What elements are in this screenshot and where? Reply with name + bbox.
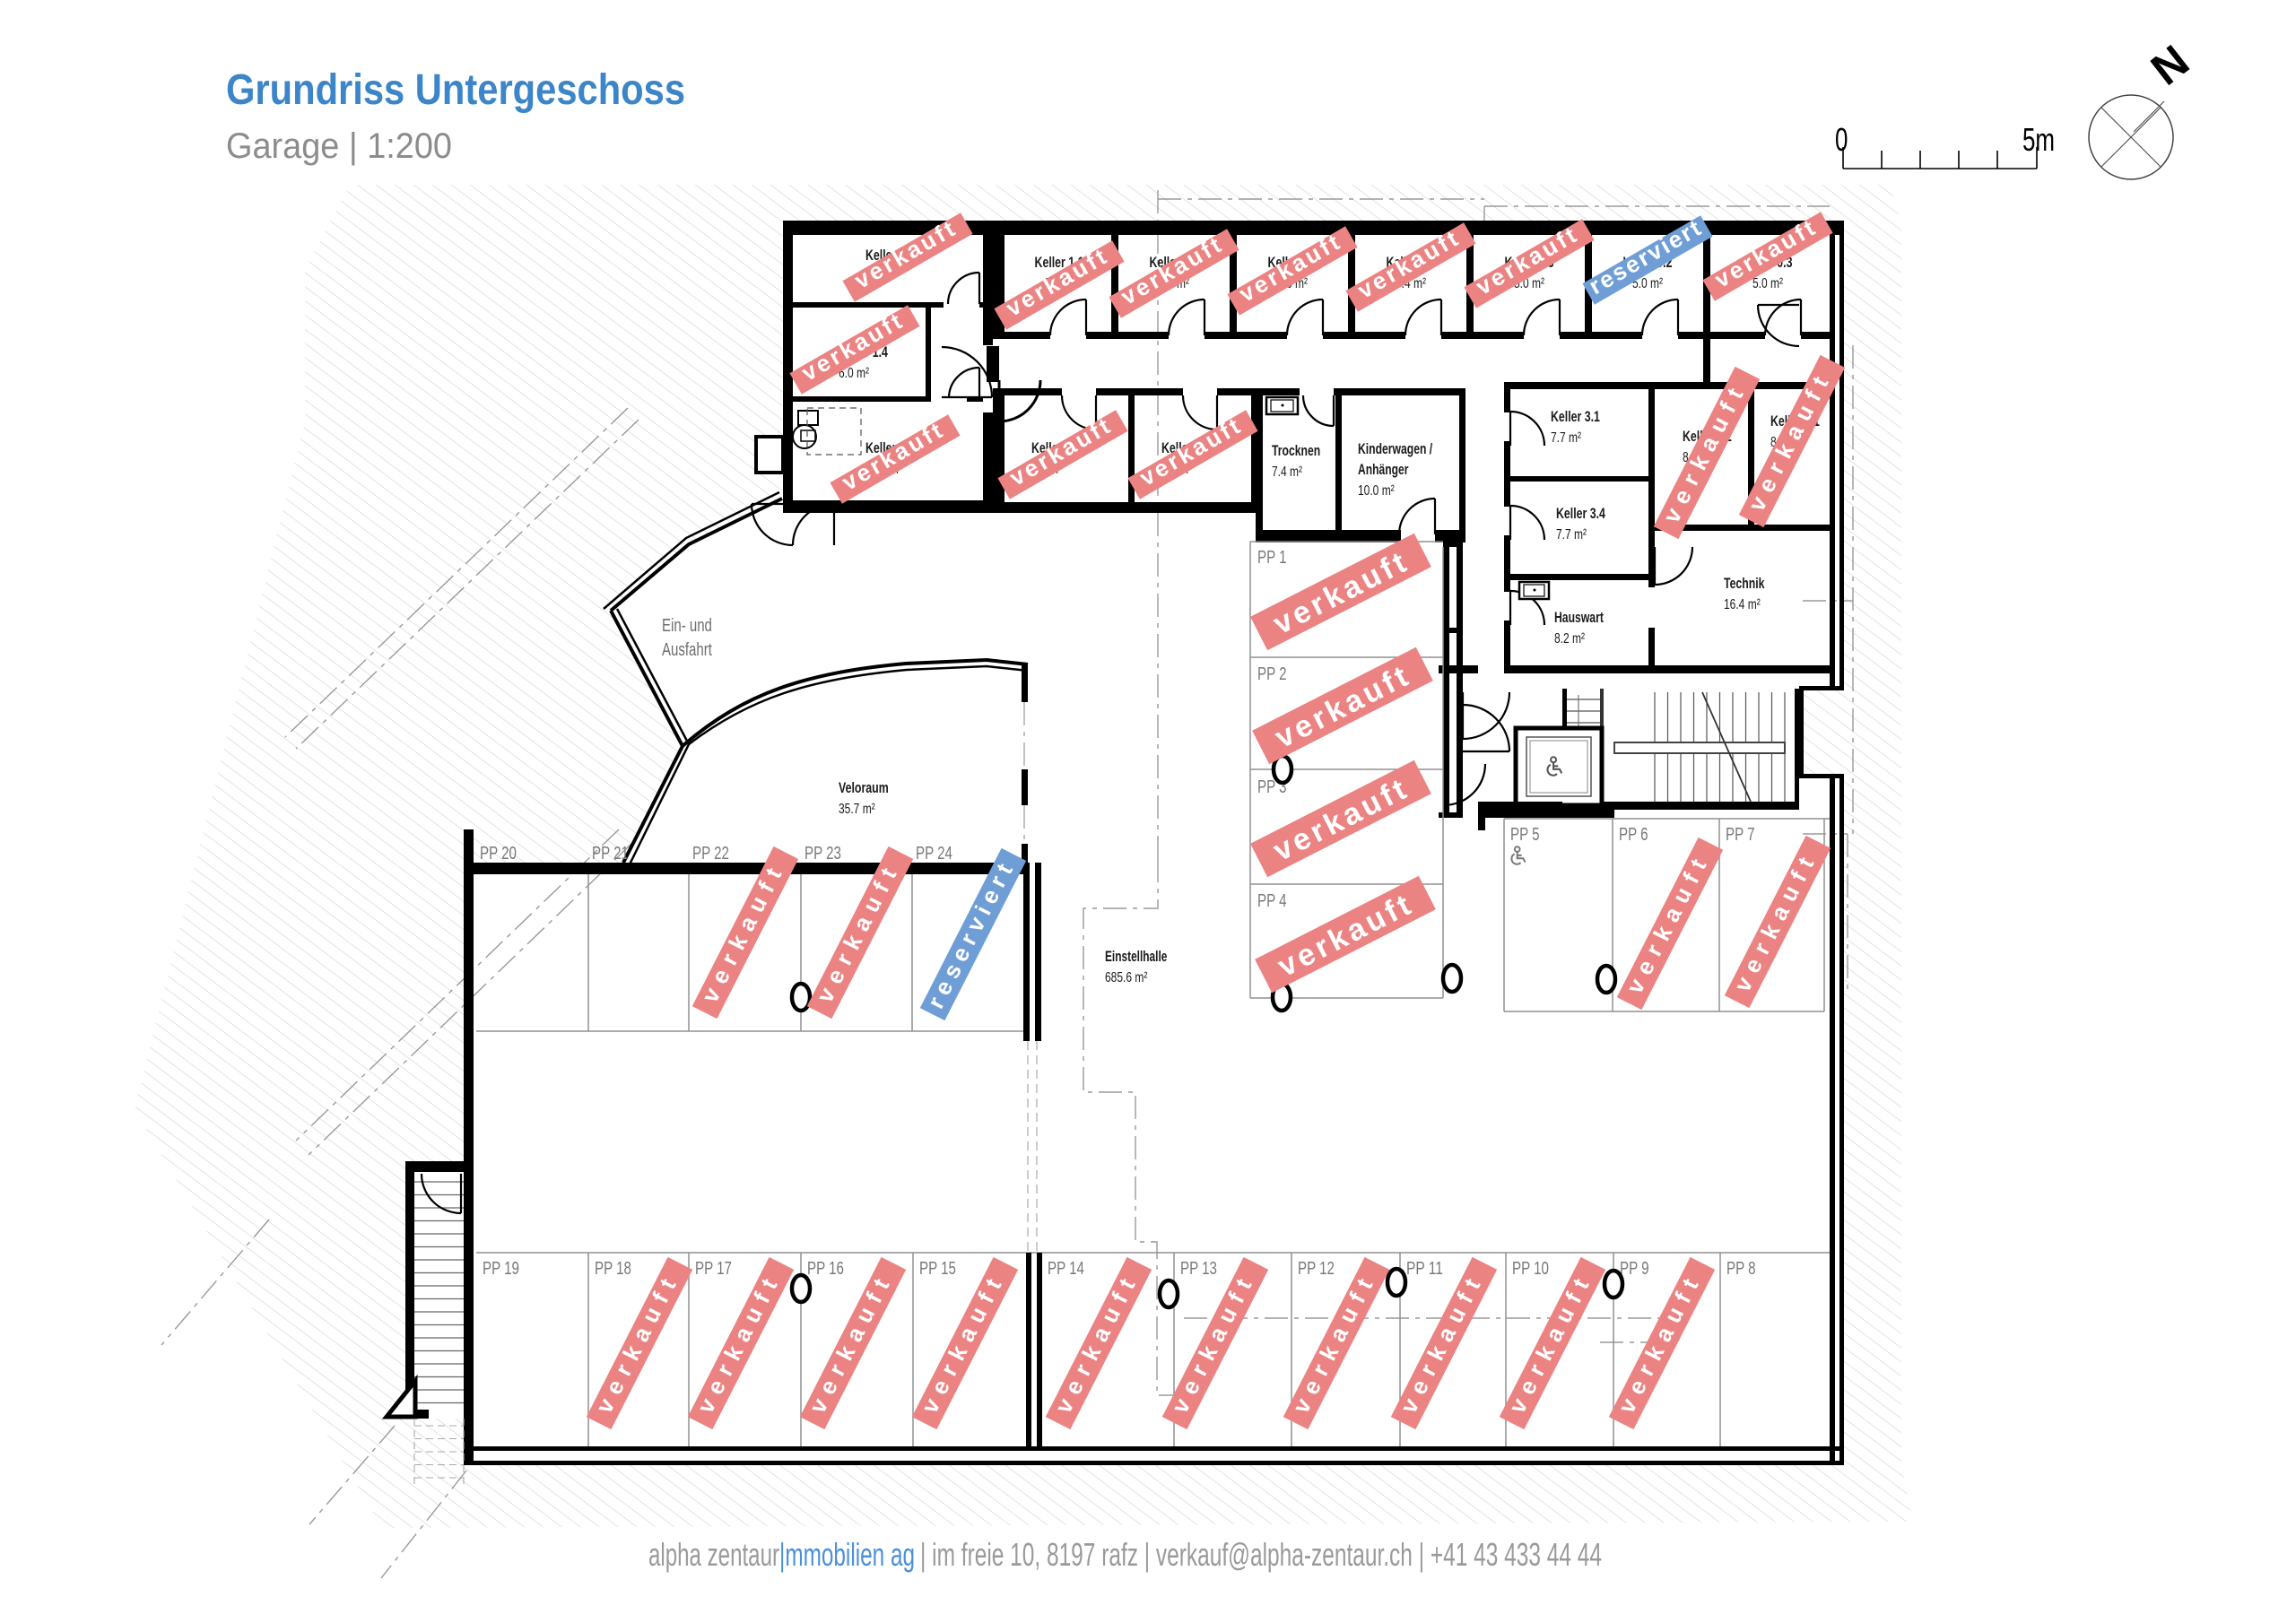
svg-text:PP 18: PP 18 [595,1259,631,1279]
svg-text:PP 24: PP 24 [916,844,952,864]
svg-text:10.0 m²: 10.0 m² [1358,483,1395,499]
svg-text:Ausfahrt: Ausfahrt [662,640,712,660]
svg-text:Einstellhalle: Einstellhalle [1105,949,1167,965]
svg-text:PP 5: PP 5 [1510,825,1540,845]
svg-text:|mmobilien ag: |mmobilien ag [779,1536,915,1573]
svg-text:PP 21: PP 21 [592,844,629,864]
svg-text:Kinderwagen /: Kinderwagen / [1358,441,1432,457]
svg-text:PP 10: PP 10 [1512,1259,1549,1279]
svg-text:Grundriss Untergeschoss: Grundriss Untergeschoss [226,66,685,114]
svg-text:PP 20: PP 20 [480,844,517,864]
svg-text:PP 17: PP 17 [695,1259,732,1279]
svg-text:Technik: Technik [1724,576,1765,592]
svg-text:alpha zentaur: alpha zentaur [648,1536,779,1573]
svg-text:PP 14: PP 14 [1048,1259,1084,1279]
svg-text:7.7 m²: 7.7 m² [1556,527,1587,542]
svg-text:PP 9: PP 9 [1620,1259,1649,1279]
svg-text:35.7 m²: 35.7 m² [839,802,875,817]
svg-text:Anhänger: Anhänger [1358,462,1409,478]
svg-text:PP 11: PP 11 [1406,1259,1443,1279]
svg-text:PP 23: PP 23 [804,844,841,864]
svg-text:| im freie 10, 8197 rafz | ver: | im freie 10, 8197 rafz | verkauf@alpha… [920,1536,1602,1573]
svg-text:Veloraum: Veloraum [839,780,889,796]
svg-text:7.4 m²: 7.4 m² [1272,464,1303,480]
svg-text:16.4 m²: 16.4 m² [1724,597,1761,612]
svg-text:PP 22: PP 22 [692,844,729,864]
svg-text:Hauswart: Hauswart [1554,610,1604,626]
svg-text:5.0 m²: 5.0 m² [1752,276,1784,291]
svg-text:PP 16: PP 16 [807,1259,844,1279]
svg-text:PP 15: PP 15 [919,1259,956,1279]
svg-text:PP 19: PP 19 [483,1259,519,1279]
svg-text:Trocknen: Trocknen [1272,443,1320,459]
svg-text:685.6 m²: 685.6 m² [1105,970,1148,985]
svg-text:PP 4: PP 4 [1257,891,1287,911]
svg-text:Garage | 1:200: Garage | 1:200 [226,126,452,166]
svg-text:PP 2: PP 2 [1257,664,1287,684]
svg-text:Ein- und: Ein- und [662,616,712,636]
svg-text:0: 0 [1835,121,1848,158]
svg-text:PP 1: PP 1 [1257,548,1287,568]
svg-text:PP 8: PP 8 [1726,1259,1756,1279]
svg-text:PP 13: PP 13 [1180,1259,1217,1279]
svg-text:Keller 3.4: Keller 3.4 [1556,506,1606,522]
svg-text:PP 7: PP 7 [1726,825,1755,845]
svg-text:7.7 m²: 7.7 m² [1551,430,1582,446]
svg-text:Keller 3.1: Keller 3.1 [1551,409,1600,425]
svg-text:PP 12: PP 12 [1298,1259,1335,1279]
svg-text:5m: 5m [2022,121,2055,158]
svg-text:8.2 m²: 8.2 m² [1554,631,1586,647]
svg-text:PP 6: PP 6 [1619,825,1648,845]
